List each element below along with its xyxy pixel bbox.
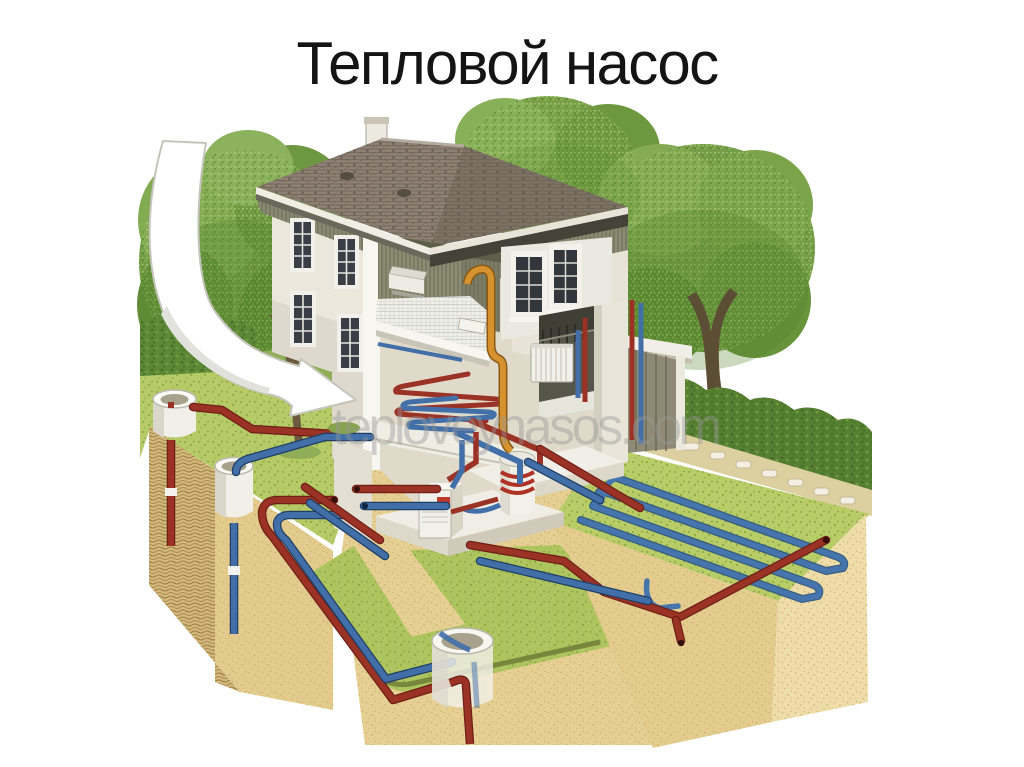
svg-text:Тепловой насос: Тепловой насос xyxy=(296,30,718,97)
svg-text:teploveynasos.com: teploveynasos.com xyxy=(332,398,722,456)
